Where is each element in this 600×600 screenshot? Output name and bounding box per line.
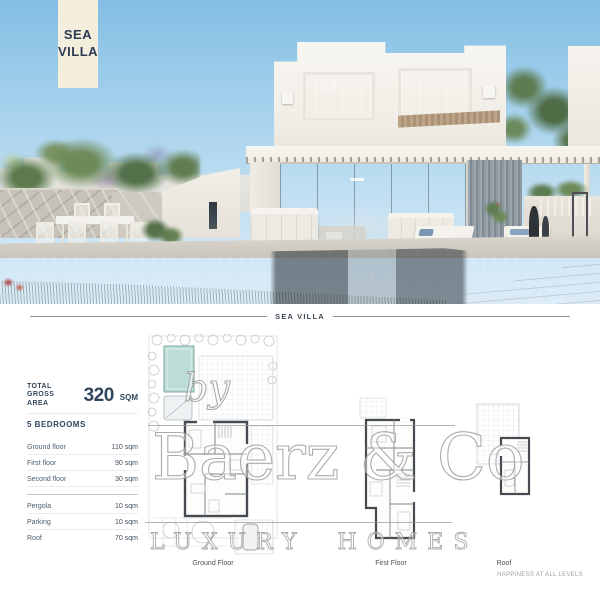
row-value: 10 sqm <box>115 503 138 510</box>
row-label: Roof <box>27 535 42 542</box>
lounger-pillow <box>418 229 433 236</box>
total-area-label: TOTAL GROSS AREA <box>27 383 78 408</box>
planter <box>482 196 510 228</box>
total-area-unit: SQM <box>120 393 138 402</box>
spec-row-parking: Parking 10 sqm <box>27 514 138 530</box>
banner-line-2: VILLA <box>58 44 98 61</box>
dining-chair <box>74 203 90 218</box>
specs-panel: TOTAL GROSS AREA 320 SQM 5 BEDROOMS Grou… <box>27 383 138 545</box>
ground-floor-plan-drawing <box>147 334 279 562</box>
spec-row-pergola: Pergola 10 sqm <box>27 498 138 514</box>
total-label-line1: TOTAL <box>27 383 78 391</box>
ceiling-lamp-reflection <box>320 83 336 89</box>
brochure-page: SEA VILLA SEA VILLA TOTAL GROSS AREA 320… <box>0 0 600 600</box>
row-label: Ground floor <box>27 444 66 451</box>
wall-vent <box>483 85 495 98</box>
divider-line-right <box>333 316 570 317</box>
dining-chair <box>104 203 120 218</box>
villa-side-tower <box>568 46 600 150</box>
divider-title: SEA VILLA <box>267 312 333 321</box>
first-floor-label: First Floor <box>356 560 426 567</box>
roof-plan-drawing <box>473 400 535 504</box>
annex-window <box>209 202 217 229</box>
flowers <box>0 272 28 298</box>
watermark-rule-top <box>148 425 455 426</box>
row-label: Pergola <box>27 503 51 510</box>
roof-plan <box>473 400 535 504</box>
bedrooms-count: 5 BEDROOMS <box>27 420 138 429</box>
spec-row-roof: Roof 70 sqm <box>27 530 138 545</box>
row-value: 90 sqm <box>115 460 138 467</box>
total-area-value: 320 <box>84 385 114 407</box>
first-floor-plan <box>356 396 426 546</box>
row-value: 110 sqm <box>112 444 138 451</box>
row-value: 70 sqm <box>115 535 138 542</box>
first-floor-plan-drawing <box>356 396 426 546</box>
total-label-line2: GROSS AREA <box>27 391 78 408</box>
spec-row-ground-floor: Ground floor 110 sqm <box>27 439 138 455</box>
watermark-rule-bottom <box>145 522 452 523</box>
row-value: 10 sqm <box>115 519 138 526</box>
total-gross-area: TOTAL GROSS AREA 320 SQM <box>27 383 138 414</box>
sea-villa-banner: SEA VILLA <box>58 0 98 88</box>
row-value: 30 sqm <box>115 476 138 483</box>
outdoor-sofa <box>252 214 318 244</box>
decor-vase <box>529 206 539 240</box>
floor-lantern <box>572 192 588 240</box>
daybed-cushion <box>510 229 530 235</box>
roof-label: Roof <box>473 560 535 567</box>
ground-floor-label: Ground Floor <box>147 560 279 567</box>
villa-photo: SEA VILLA <box>0 0 600 304</box>
spec-row-second-floor: Second floor 30 sqm <box>27 471 138 487</box>
floorplan-sheet: TOTAL GROSS AREA 320 SQM 5 BEDROOMS Grou… <box>0 326 600 600</box>
ground-floor-plan <box>147 334 279 562</box>
section-divider: SEA VILLA <box>0 309 600 323</box>
spec-group-divider <box>27 494 138 495</box>
row-label: Second floor <box>27 476 66 483</box>
interior-lamp <box>350 178 364 181</box>
spec-row-first-floor: First floor 90 sqm <box>27 455 138 471</box>
row-label: Parking <box>27 519 51 526</box>
divider-line-left <box>30 316 267 317</box>
upper-window-left <box>303 72 375 120</box>
footer-slogan: HAPPINESS AT ALL LEVELS <box>497 572 583 578</box>
upper-window-right <box>398 68 472 118</box>
decor-vase <box>542 216 549 240</box>
wall-vent <box>282 92 293 104</box>
row-label: First floor <box>27 460 56 467</box>
banner-line-1: SEA <box>64 27 92 44</box>
